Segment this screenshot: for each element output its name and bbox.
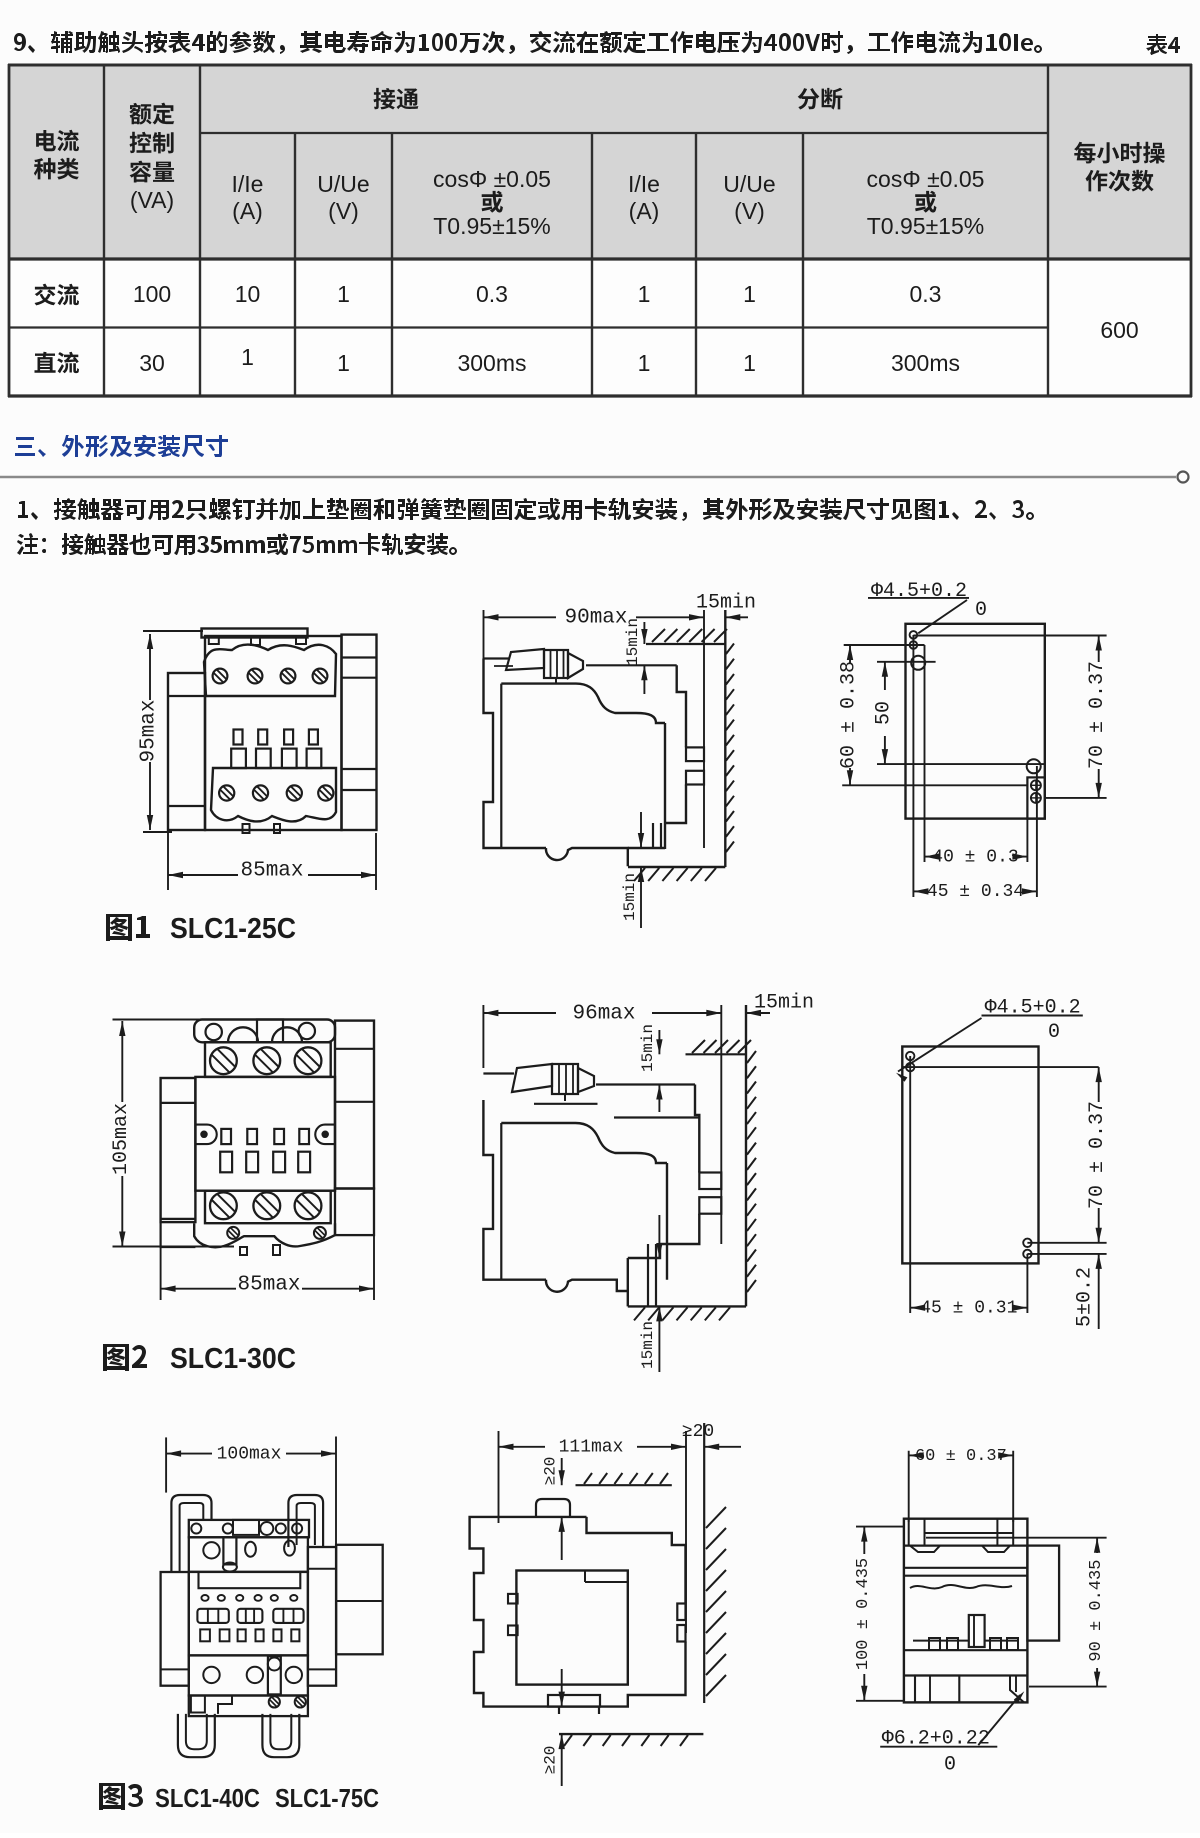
- svg-text:600: 600: [1100, 317, 1138, 343]
- svg-text:60 ± 0.37: 60 ± 0.37: [915, 1447, 1007, 1466]
- svg-text:70 ± 0.37: 70 ± 0.37: [1086, 661, 1109, 769]
- svg-text:1: 1: [743, 281, 756, 307]
- svg-text:40 ± 0.3: 40 ± 0.3: [932, 847, 1018, 867]
- svg-text:15min: 15min: [621, 873, 639, 921]
- svg-text:15min: 15min: [624, 618, 642, 666]
- svg-text:≥20: ≥20: [542, 1746, 560, 1775]
- svg-text:90 ± 0.435: 90 ± 0.435: [1087, 1560, 1106, 1662]
- svg-text:I/Ie: I/Ie: [628, 171, 660, 197]
- svg-text:1: 1: [241, 344, 254, 370]
- svg-text:5±0.2: 5±0.2: [1073, 1267, 1096, 1327]
- svg-text:95max: 95max: [138, 699, 161, 762]
- svg-text:0: 0: [944, 1753, 956, 1776]
- svg-text:15min: 15min: [754, 991, 814, 1014]
- svg-text:85max: 85max: [237, 1273, 300, 1296]
- svg-text:(V): (V): [734, 198, 765, 224]
- svg-text:1: 1: [743, 350, 756, 376]
- svg-text:(V): (V): [328, 198, 359, 224]
- svg-text:(VA): (VA): [130, 187, 174, 213]
- svg-text:(A): (A): [232, 198, 263, 224]
- svg-text:90max: 90max: [564, 607, 627, 630]
- svg-text:0.3: 0.3: [910, 281, 942, 307]
- svg-text:10: 10: [235, 281, 261, 307]
- svg-text:1: 1: [337, 281, 350, 307]
- svg-text:≥20: ≥20: [682, 1422, 714, 1442]
- svg-text:15min: 15min: [639, 1321, 657, 1369]
- svg-text:0: 0: [1048, 1021, 1060, 1044]
- svg-text:SLC1-25C: SLC1-25C: [170, 913, 296, 945]
- svg-text:0.3: 0.3: [476, 281, 508, 307]
- svg-text:I/Ie: I/Ie: [232, 171, 264, 197]
- svg-text:300ms: 300ms: [891, 350, 960, 376]
- svg-text:30: 30: [139, 350, 165, 376]
- svg-text:60 ± 0.38: 60 ± 0.38: [837, 661, 860, 769]
- svg-text:cosΦ ±0.05: cosΦ ±0.05: [867, 166, 985, 192]
- svg-text:45 ± 0.34: 45 ± 0.34: [927, 882, 1024, 902]
- svg-text:1: 1: [638, 281, 651, 307]
- svg-text:U/Ue: U/Ue: [317, 171, 369, 197]
- svg-text:100max: 100max: [217, 1445, 282, 1465]
- svg-text:cosΦ ±0.05: cosΦ ±0.05: [433, 166, 551, 192]
- svg-text:≥20: ≥20: [542, 1457, 560, 1486]
- svg-text:45 ± 0.31: 45 ± 0.31: [920, 1299, 1017, 1319]
- svg-text:105max: 105max: [110, 1103, 133, 1175]
- svg-text:111max: 111max: [559, 1438, 624, 1458]
- svg-text:15min: 15min: [639, 1024, 657, 1072]
- svg-text:T0.95±15%: T0.95±15%: [867, 213, 984, 239]
- svg-text:1: 1: [337, 350, 350, 376]
- svg-text:85max: 85max: [240, 860, 303, 883]
- svg-text:300ms: 300ms: [457, 350, 526, 376]
- svg-text:15min: 15min: [696, 591, 756, 614]
- svg-text:U/Ue: U/Ue: [723, 171, 775, 197]
- svg-text:100: 100: [133, 281, 171, 307]
- svg-text:50: 50: [872, 701, 895, 725]
- svg-text:SLC1-40C: SLC1-40C: [155, 1783, 260, 1813]
- svg-text:96max: 96max: [572, 1003, 635, 1026]
- svg-text:SLC1-30C: SLC1-30C: [170, 1343, 296, 1375]
- svg-text:0: 0: [975, 599, 987, 622]
- svg-text:T0.95±15%: T0.95±15%: [433, 213, 550, 239]
- svg-text:Φ4.5+0.2: Φ4.5+0.2: [871, 580, 967, 603]
- svg-text:(A): (A): [629, 198, 660, 224]
- svg-text:70 ± 0.37: 70 ± 0.37: [1086, 1101, 1109, 1209]
- svg-text:SLC1-75C: SLC1-75C: [275, 1783, 379, 1813]
- svg-text:1: 1: [638, 350, 651, 376]
- svg-text:100 ± 0.435: 100 ± 0.435: [854, 1558, 873, 1670]
